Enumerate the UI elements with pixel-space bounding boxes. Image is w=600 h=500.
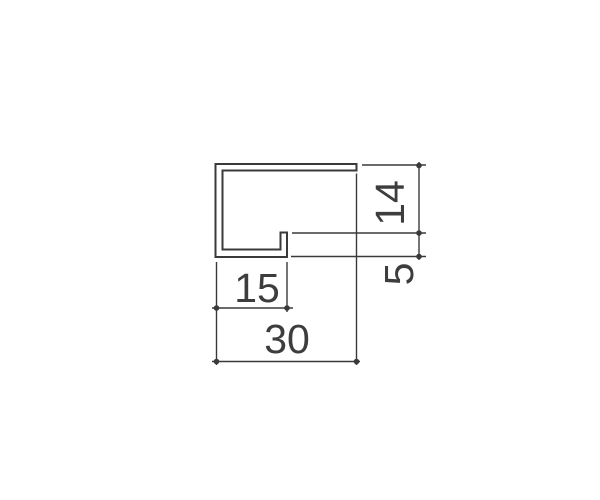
dimension-endpoint-dot: [214, 359, 220, 365]
profile-outline: [216, 164, 357, 257]
dimension-label-bottom-flange-width: 15: [234, 265, 280, 311]
profile: [216, 164, 357, 257]
dimension-endpoint-dot: [416, 163, 422, 169]
dimension-endpoint-dot: [284, 305, 290, 311]
dimension-labels: 15 30 14 5: [234, 180, 422, 362]
dimension-label-overall-width: 30: [264, 316, 310, 362]
dimension-endpoint-dot: [416, 254, 422, 260]
dimension-endpoint-dot: [416, 230, 422, 236]
dimension-label-upper-height: 14: [367, 180, 413, 226]
dimension-endpoint-dot: [354, 359, 360, 365]
dimension-endpoint-dot: [214, 305, 220, 311]
dimension-label-lip-height: 5: [376, 263, 422, 286]
profile-drawing-canvas: 15 30 14 5: [0, 0, 600, 500]
drawing-page: 15 30 14 5: [0, 0, 600, 500]
